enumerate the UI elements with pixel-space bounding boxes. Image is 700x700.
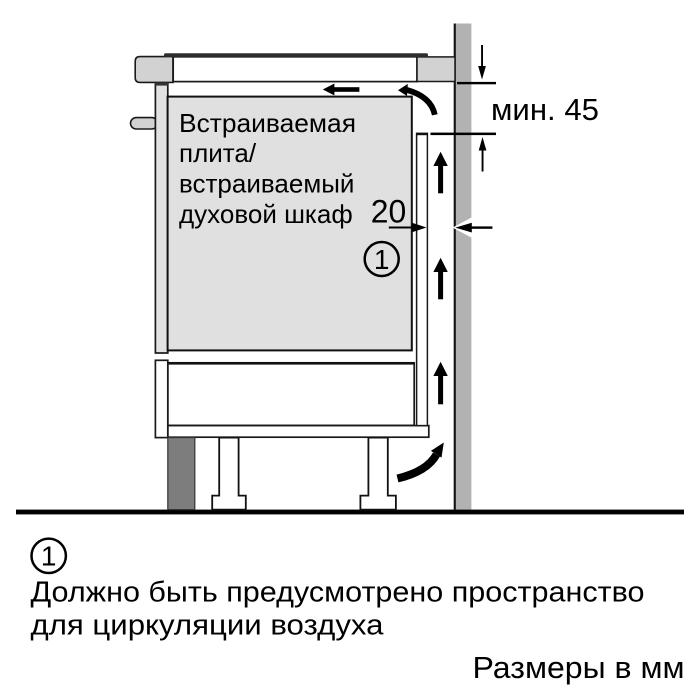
svg-text:для циркуляции воздуха: для циркуляции воздуха	[31, 610, 384, 642]
svg-text:духовой шкаф: духовой шкаф	[179, 199, 353, 229]
svg-text:Встраиваемая: Встраиваемая	[179, 108, 356, 138]
svg-text:Должно быть предусмотрено прос: Должно быть предусмотрено пространство	[31, 577, 645, 609]
svg-text:Размеры в мм: Размеры в мм	[473, 650, 685, 685]
svg-text:плита/: плита/	[179, 138, 257, 168]
svg-text:1: 1	[374, 244, 390, 275]
svg-text:встраиваемый: встраиваемый	[179, 169, 354, 199]
svg-text:мин. 45: мин. 45	[491, 93, 599, 127]
svg-text:1: 1	[41, 541, 57, 572]
svg-text:20: 20	[371, 193, 407, 229]
